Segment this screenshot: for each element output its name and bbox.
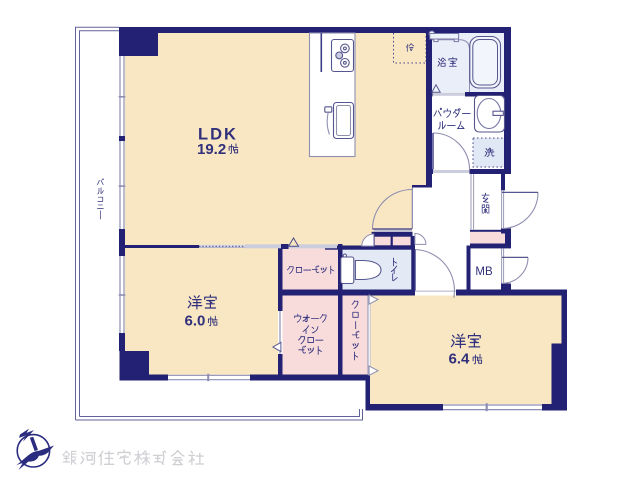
svg-text:6.4: 6.4 <box>449 351 471 368</box>
svg-text:19.2: 19.2 <box>197 141 226 158</box>
svg-text:6.0: 6.0 <box>185 313 206 330</box>
svg-text:MB: MB <box>475 266 493 278</box>
